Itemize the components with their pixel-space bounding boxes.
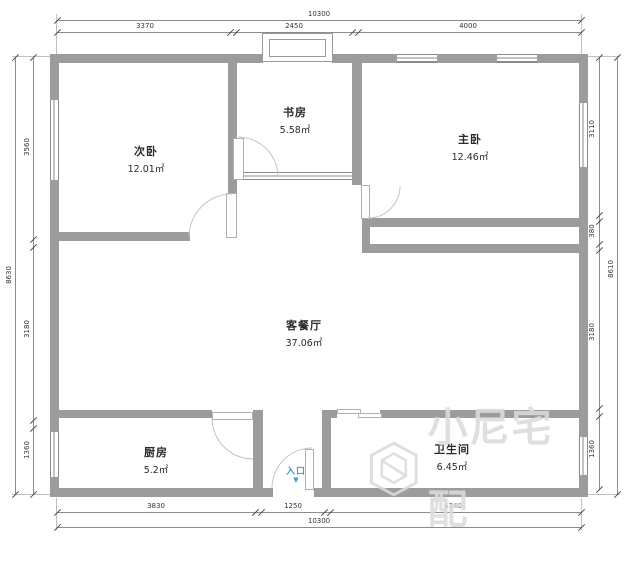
room-name: 次卧 <box>96 143 196 159</box>
dim-bottom-seg2: 1250 <box>273 502 313 510</box>
wall-master-bottom <box>368 218 579 227</box>
dim-right-overall: 8610 <box>607 254 615 284</box>
room-name: 书房 <box>245 104 345 120</box>
dim-left-overall: 8630 <box>5 260 13 290</box>
room-name: 主卧 <box>420 131 520 147</box>
door-arc-study <box>238 137 278 177</box>
extension-line <box>588 56 620 57</box>
room-name: 客餐厅 <box>254 317 354 333</box>
room-label-bathroom: 卫生间 6.45㎡ <box>402 441 502 473</box>
room-label-living-dining: 客餐厅 37.06㎡ <box>254 317 354 349</box>
dim-line-bottom-overall <box>57 527 581 528</box>
window-master-top-1 <box>397 54 437 63</box>
dim-bottom-seg1: 3830 <box>136 502 176 510</box>
dim-line-bottom-chain <box>57 512 581 513</box>
dim-left-seg1: 3560 <box>23 132 31 162</box>
wall-bottom <box>50 488 588 497</box>
wall-bathroom-top-b <box>380 410 579 418</box>
wall-kitchen-top <box>59 410 212 418</box>
bay-window-inner <box>269 39 326 57</box>
dim-line-right-chain <box>599 57 600 490</box>
door-leaf-master <box>361 185 370 219</box>
room-area: 37.06㎡ <box>254 335 354 349</box>
dim-bottom-seg3: 4740 <box>433 502 473 510</box>
dim-right-seg1: 3110 <box>588 114 596 144</box>
dim-left-seg2: 3180 <box>23 314 31 344</box>
dim-right-seg2: 380 <box>588 216 596 246</box>
wall-niche-connector <box>362 218 370 253</box>
dim-bottom-overall: 10300 <box>299 517 339 525</box>
dim-line-left-overall <box>15 57 16 494</box>
dim-top-seg2: 2450 <box>274 22 314 30</box>
room-area: 12.01㎡ <box>96 161 196 175</box>
room-name: 卫生间 <box>402 441 502 457</box>
dim-top-overall: 10300 <box>299 10 339 18</box>
room-area: 5.58㎡ <box>245 122 345 136</box>
dim-top-seg1: 3370 <box>125 22 165 30</box>
wall-bedroom2-bottom <box>59 232 190 241</box>
dim-right-seg3: 3180 <box>588 317 596 347</box>
door-arc-master <box>368 186 400 218</box>
partition-study-south <box>244 172 352 180</box>
door-leaf-bedroom2 <box>226 193 237 238</box>
window-kitchen-left <box>50 432 59 477</box>
room-label-study: 书房 5.58㎡ <box>245 104 345 136</box>
dim-line-top-overall <box>57 20 581 21</box>
room-label-kitchen: 厨房 5.2㎡ <box>106 444 206 476</box>
dimension-tick <box>596 486 603 493</box>
wall-living-north <box>362 244 579 253</box>
wall-study-master-divider <box>352 63 362 185</box>
door-leaf-study <box>233 138 244 180</box>
door-swing-arcs <box>0 0 640 562</box>
entrance-marker: 入口 ▼ <box>276 464 316 484</box>
floor-plan: 10300 3370 2450 4000 3830 1250 4740 1030… <box>0 0 640 562</box>
window-bathroom-right <box>579 437 588 475</box>
room-area: 6.45㎡ <box>402 459 502 473</box>
window-master-top-2 <box>497 54 537 63</box>
dim-left-seg3: 1360 <box>23 435 31 465</box>
dim-line-right-overall <box>617 57 618 494</box>
door-arc-kitchen <box>212 418 253 459</box>
wall-kitchen-entry-divider <box>253 410 263 488</box>
wall-bathroom-left <box>322 410 331 488</box>
bathroom-sliding-door <box>358 413 382 418</box>
room-label-master-bedroom: 主卧 12.46㎡ <box>420 131 520 163</box>
window-master-right <box>579 103 588 167</box>
dim-right-seg4: 1360 <box>588 434 596 464</box>
room-area: 12.46㎡ <box>420 149 520 163</box>
window-bedroom2-left <box>50 100 59 180</box>
room-label-secondary-bedroom: 次卧 12.01㎡ <box>96 143 196 175</box>
entrance-arrow-icon: ▼ <box>276 477 316 484</box>
door-leaf-kitchen <box>212 412 253 420</box>
dim-top-seg3: 4000 <box>448 22 488 30</box>
room-area: 5.2㎡ <box>106 462 206 476</box>
room-name: 厨房 <box>106 444 206 460</box>
